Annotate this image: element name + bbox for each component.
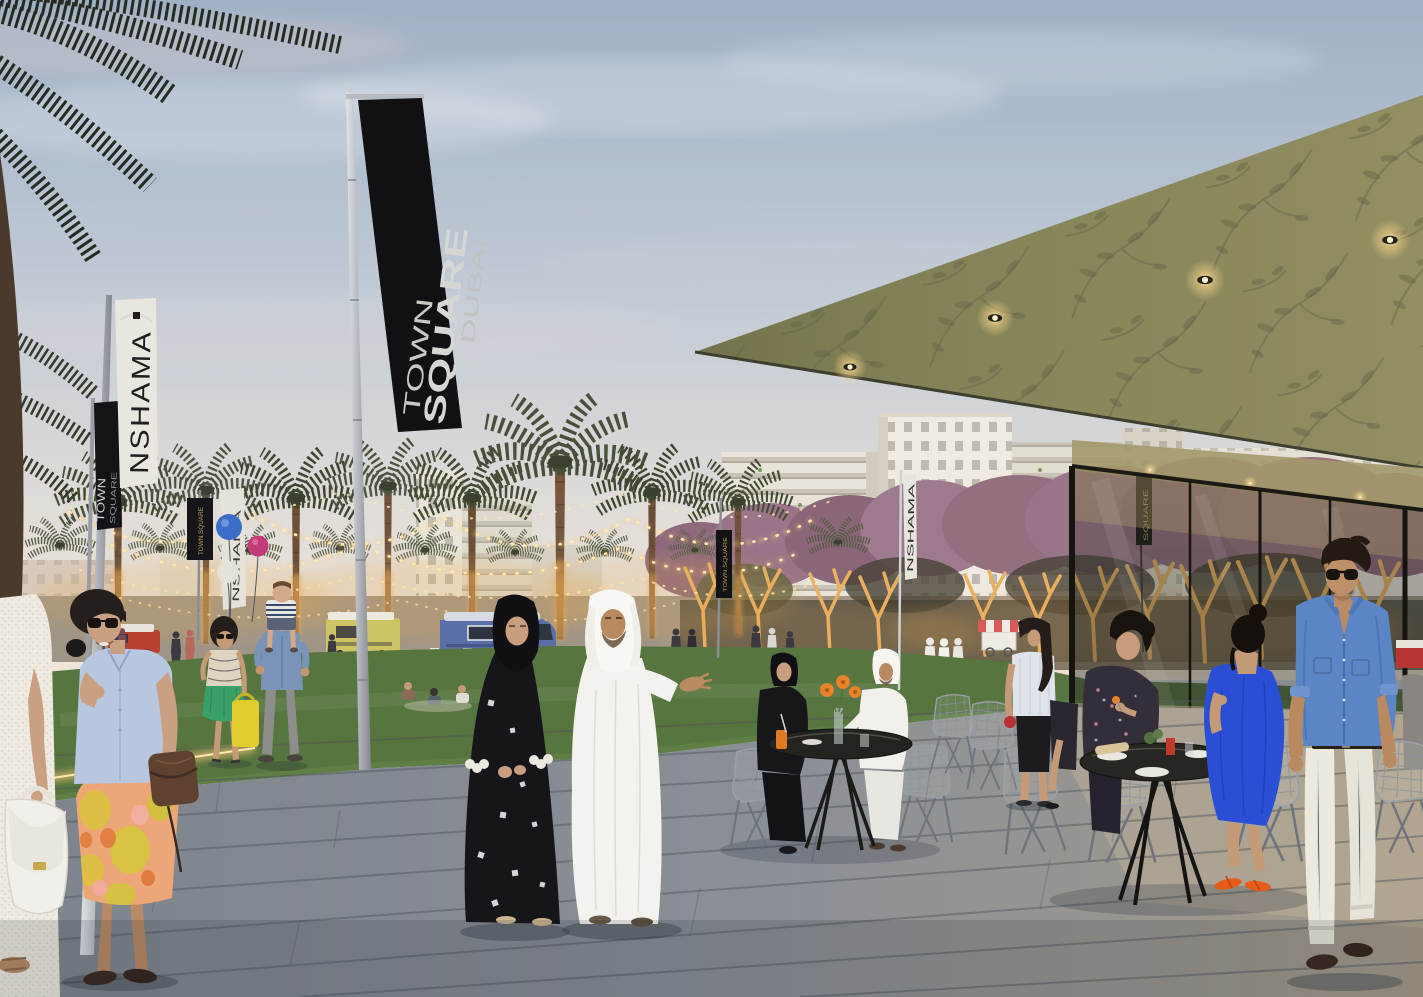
banner-text: NSHAMA [905, 483, 917, 572]
plate [1135, 767, 1169, 777]
balloon-blue [216, 514, 242, 540]
gold-clasp [33, 862, 46, 870]
nshama-logo-mark [133, 312, 140, 319]
banner-text: NSHAMA [124, 330, 157, 475]
sunglasses [88, 618, 101, 628]
soffit-downlight [1370, 220, 1411, 261]
hair-bun [1249, 604, 1267, 622]
bottom-vignette [0, 920, 1423, 997]
yellow-tote-bag [232, 700, 259, 747]
orange-drink [776, 730, 787, 749]
balloon-cream [217, 561, 239, 583]
banner-text: TOWN SQUARE [723, 537, 729, 592]
hair-bun [66, 639, 86, 657]
scene-town-square-dubai-rendering: SQUARE [0, 0, 1423, 997]
red-drink [1166, 738, 1175, 755]
banner-text: TOWN SQUARE [199, 507, 205, 555]
banner-text: SQUARE [108, 472, 119, 524]
sunglasses [1326, 569, 1340, 580]
kiosk-red-white [1396, 640, 1423, 668]
soffit-downlight [1185, 260, 1226, 301]
soffit-downlight [976, 299, 1013, 336]
soffit-downlight [833, 350, 867, 384]
striped-awning [978, 620, 1020, 632]
balloon-magenta [248, 536, 269, 557]
banner-text: TOWN [95, 478, 109, 522]
red-purse [1004, 716, 1016, 728]
banner-nshama-white: NSHAMA [115, 298, 158, 488]
